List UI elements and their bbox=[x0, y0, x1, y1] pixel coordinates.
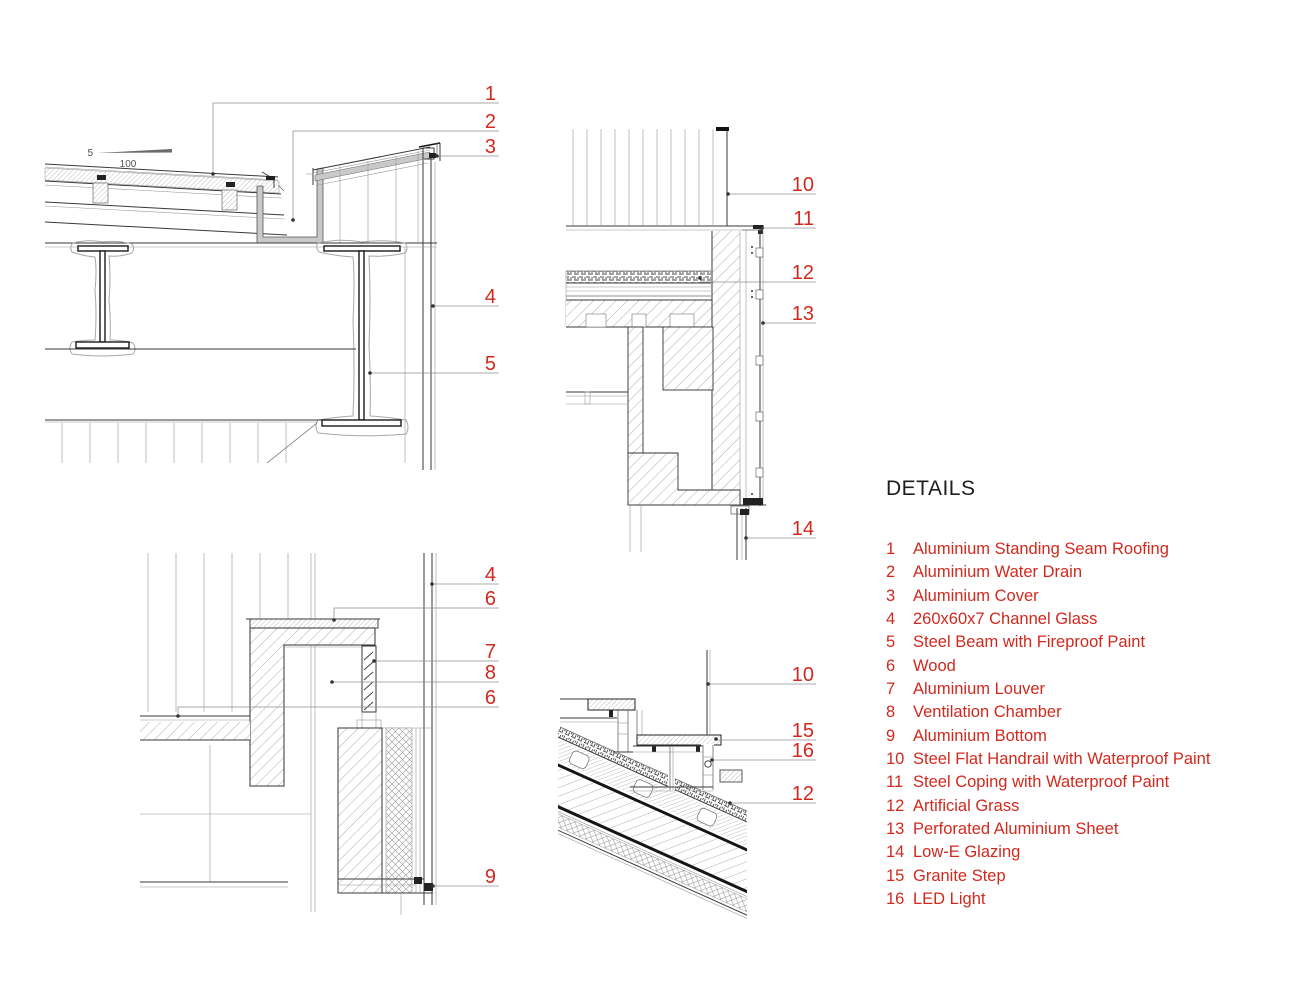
perforated-aluminium-sheet bbox=[742, 228, 763, 506]
legend-item-label: Aluminium Cover bbox=[913, 585, 1296, 608]
legend-item: 9Aluminium Bottom bbox=[886, 725, 1296, 748]
led-light bbox=[705, 761, 711, 767]
legend-item-number: 7 bbox=[886, 678, 913, 701]
legend-item-label: LED Light bbox=[913, 888, 1296, 911]
callout-6b: 6 bbox=[176, 687, 499, 718]
legend-item-label: Aluminium Bottom bbox=[913, 725, 1296, 748]
legend-item-number: 11 bbox=[886, 771, 913, 794]
callout-label: 5 bbox=[485, 353, 496, 375]
legend-item: 2Aluminium Water Drain bbox=[886, 561, 1296, 584]
legend-item: 15Granite Step bbox=[886, 865, 1296, 888]
callout-label: 9 bbox=[485, 866, 496, 888]
drawing-parapet-detail: 10 11 12 13 14 bbox=[566, 127, 816, 560]
steel-beam-right bbox=[316, 240, 408, 436]
steel-beam-left bbox=[70, 241, 135, 356]
legend-item-number: 16 bbox=[886, 888, 913, 911]
callout-15: 15 bbox=[714, 720, 816, 742]
aluminium-louver bbox=[357, 646, 381, 728]
handrail-post bbox=[707, 650, 710, 735]
legend-item: 10Steel Flat Handrail with Waterproof Pa… bbox=[886, 748, 1296, 771]
legend-item-number: 3 bbox=[886, 585, 913, 608]
legend-item-number: 5 bbox=[886, 631, 913, 654]
drawing-roof-step-detail: 10 15 16 12 bbox=[520, 650, 816, 923]
legend-item-number: 4 bbox=[886, 608, 913, 631]
callout-label: 4 bbox=[485, 286, 496, 308]
callout-label: 10 bbox=[792, 174, 814, 196]
legend: DETAILS 1Aluminium Standing Seam Roofing… bbox=[886, 477, 1296, 501]
callout-13: 13 bbox=[761, 303, 816, 325]
legend-item: 4260x60x7 Channel Glass bbox=[886, 608, 1296, 631]
callout-label: 15 bbox=[792, 720, 814, 742]
legend-title: DETAILS bbox=[886, 477, 1296, 501]
callout-label: 6 bbox=[485, 588, 496, 610]
callout-11: 11 bbox=[760, 208, 816, 230]
channel-glass-wall bbox=[423, 158, 435, 470]
glazing bbox=[731, 506, 749, 560]
legend-item: 16LED Light bbox=[886, 888, 1296, 911]
granite-step-slab bbox=[637, 735, 721, 745]
legend-item-label: Steel Beam with Fireproof Paint bbox=[913, 631, 1296, 654]
legend-item-number: 9 bbox=[886, 725, 913, 748]
roof-layers bbox=[45, 164, 287, 235]
callout-14: 14 bbox=[744, 518, 816, 540]
callout-3: 3 bbox=[435, 136, 499, 158]
callout-label: 3 bbox=[485, 136, 496, 158]
callout-label: 16 bbox=[792, 740, 814, 762]
callout-label: 4 bbox=[485, 564, 496, 586]
slope-rise-label: 5 bbox=[87, 148, 93, 159]
legend-item-label: Wood bbox=[913, 655, 1296, 678]
callout-10b: 10 bbox=[706, 664, 816, 686]
legend-item-label: Low-E Glazing bbox=[913, 841, 1296, 864]
callout-label: 13 bbox=[792, 303, 814, 325]
insulation bbox=[386, 728, 412, 893]
legend-item-label: Aluminium Louver bbox=[913, 678, 1296, 701]
legend-item: 14Low-E Glazing bbox=[886, 841, 1296, 864]
callout-label: 10 bbox=[792, 664, 814, 686]
floor-slab-left bbox=[140, 716, 311, 887]
callout-label: 1 bbox=[485, 83, 496, 105]
callout-label: 8 bbox=[485, 662, 496, 684]
upper-roof bbox=[306, 147, 430, 243]
callout-7: 7 bbox=[372, 641, 499, 663]
callout-10: 10 bbox=[726, 174, 816, 196]
legend-item-label: Artificial Grass bbox=[913, 795, 1296, 818]
legend-item-number: 2 bbox=[886, 561, 913, 584]
concrete-column bbox=[338, 728, 432, 893]
legend-item-label: Ventilation Chamber bbox=[913, 701, 1296, 724]
legend-item-label: Aluminium Standing Seam Roofing bbox=[913, 538, 1296, 561]
legend-item-number: 13 bbox=[886, 818, 913, 841]
callout-label: 7 bbox=[485, 641, 496, 663]
legend-item: 8Ventilation Chamber bbox=[886, 701, 1296, 724]
railing bbox=[573, 127, 729, 226]
legend-item-label: Granite Step bbox=[913, 865, 1296, 888]
legend-item: 11Steel Coping with Waterproof Paint bbox=[886, 771, 1296, 794]
legend-item-label: Steel Flat Handrail with Waterproof Pain… bbox=[913, 748, 1296, 771]
legend-item-label: 260x60x7 Channel Glass bbox=[913, 608, 1296, 631]
legend-items: 1Aluminium Standing Seam Roofing 2Alumin… bbox=[886, 538, 1296, 912]
legend-item: 1Aluminium Standing Seam Roofing bbox=[886, 538, 1296, 561]
callout-label: 6 bbox=[485, 687, 496, 709]
callout-label: 12 bbox=[792, 783, 814, 805]
wood-cap bbox=[246, 619, 380, 628]
callout-5: 5 bbox=[368, 353, 499, 375]
legend-item-number: 1 bbox=[886, 538, 913, 561]
callout-16: 16 bbox=[710, 740, 816, 762]
callout-12b: 12 bbox=[728, 783, 816, 805]
legend-item-number: 10 bbox=[886, 748, 913, 771]
legend-item-number: 12 bbox=[886, 795, 913, 818]
callout-6a: 6 bbox=[332, 588, 499, 622]
drawing-wall-louver-detail: 4 6 7 8 6 9 bbox=[140, 553, 499, 915]
legend-item: 12Artificial Grass bbox=[886, 795, 1296, 818]
legend-item: 7Aluminium Louver bbox=[886, 678, 1296, 701]
legend-item-number: 6 bbox=[886, 655, 913, 678]
callout-9: 9 bbox=[431, 866, 499, 888]
legend-item: 6Wood bbox=[886, 655, 1296, 678]
callout-4b: 4 bbox=[430, 564, 499, 586]
callout-4: 4 bbox=[431, 286, 499, 308]
callout-label: 14 bbox=[792, 518, 814, 540]
legend-item-number: 15 bbox=[886, 865, 913, 888]
sloped-roof-assembly bbox=[520, 727, 797, 923]
callout-8: 8 bbox=[330, 662, 499, 684]
legend-item: 5Steel Beam with Fireproof Paint bbox=[886, 631, 1296, 654]
legend-item: 13Perforated Aluminium Sheet bbox=[886, 818, 1296, 841]
legend-item: 3Aluminium Cover bbox=[886, 585, 1296, 608]
legend-item-label: Perforated Aluminium Sheet bbox=[913, 818, 1296, 841]
detail-sheet: 5 100 bbox=[0, 0, 1310, 1000]
legend-item-number: 8 bbox=[886, 701, 913, 724]
channel-glass-wall bbox=[424, 553, 436, 905]
legend-item-label: Steel Coping with Waterproof Paint bbox=[913, 771, 1296, 794]
callout-label: 12 bbox=[792, 262, 814, 284]
legend-item-label: Aluminium Water Drain bbox=[913, 561, 1296, 584]
callout-label: 2 bbox=[485, 111, 496, 133]
callout-label: 11 bbox=[793, 208, 814, 230]
drawing-roof-eave-detail: 5 100 bbox=[45, 83, 499, 470]
legend-item-number: 14 bbox=[886, 841, 913, 864]
